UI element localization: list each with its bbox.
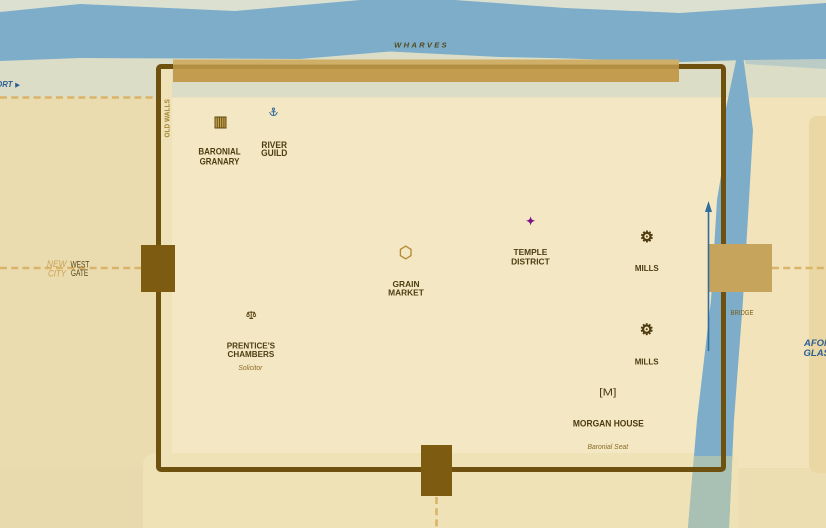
svg-text:CHAMBERS: CHAMBERS (228, 350, 275, 359)
svg-text:Solicitor: Solicitor (238, 365, 263, 372)
svg-text:MARKET: MARKET (388, 287, 425, 297)
svg-text:OLD WALLS: OLD WALLS (164, 99, 171, 138)
svg-text:BRIDGE: BRIDGE (731, 309, 754, 317)
svg-text:GLAS: GLAS (804, 348, 826, 359)
svg-text:CITY: CITY (48, 268, 67, 278)
svg-text:MORGAN HOUSE: MORGAN HOUSE (573, 418, 644, 429)
svg-text:MILLS: MILLS (635, 357, 659, 366)
svg-text:PRENTICE'S: PRENTICE'S (227, 342, 275, 351)
svg-text:MILLS: MILLS (635, 264, 659, 273)
svg-text:[M]: [M] (599, 387, 616, 398)
svg-text:ORT: ORT (0, 80, 14, 89)
svg-text:GATE: GATE (71, 268, 88, 278)
svg-text:WHARVES: WHARVES (394, 41, 449, 50)
svg-text:DISTRICT: DISTRICT (511, 256, 550, 266)
svg-text:GUILD: GUILD (261, 148, 287, 158)
svg-text:GRANARY: GRANARY (200, 156, 240, 166)
svg-text:Baronial Seat: Baronial Seat (587, 444, 629, 451)
